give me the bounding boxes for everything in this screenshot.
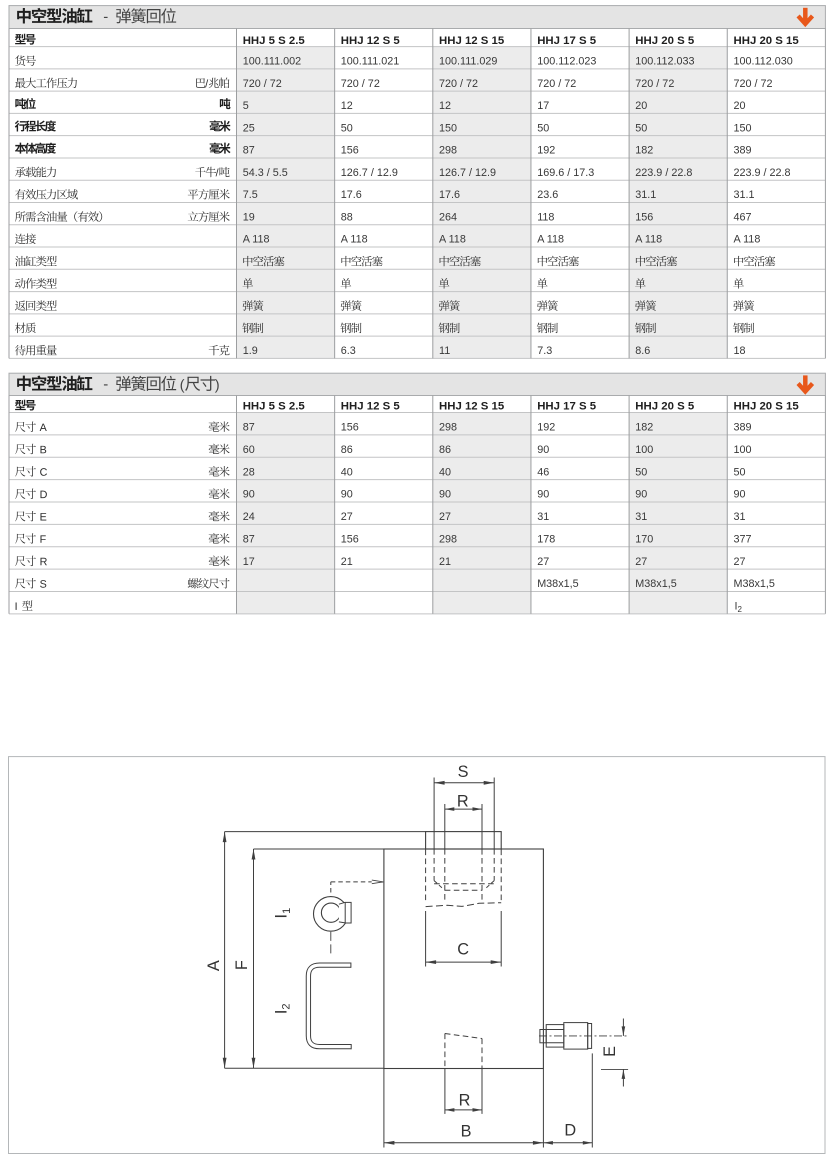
svg-text:720 / 72: 720 / 72 xyxy=(537,78,576,90)
svg-text:21: 21 xyxy=(439,556,451,568)
svg-text:50: 50 xyxy=(635,122,647,134)
svg-text:17: 17 xyxy=(537,100,549,112)
svg-text:182: 182 xyxy=(635,145,653,157)
svg-text:7.3: 7.3 xyxy=(537,345,552,357)
svg-text:720 / 72: 720 / 72 xyxy=(341,78,380,90)
svg-text:170: 170 xyxy=(635,533,653,545)
svg-text:A 118: A 118 xyxy=(341,234,368,246)
svg-text:17.6: 17.6 xyxy=(439,189,460,201)
svg-text:720 / 72: 720 / 72 xyxy=(439,78,478,90)
svg-text:HHJ 12 S 15: HHJ 12 S 15 xyxy=(439,401,505,413)
svg-text:156: 156 xyxy=(341,533,359,545)
svg-text:150: 150 xyxy=(439,122,457,134)
svg-text:31: 31 xyxy=(635,511,647,523)
svg-text:R: R xyxy=(457,792,469,810)
svg-text:I2: I2 xyxy=(735,601,743,615)
svg-text:18: 18 xyxy=(734,345,746,357)
svg-text:40: 40 xyxy=(439,466,451,478)
svg-text:20: 20 xyxy=(635,100,647,112)
svg-text:720 / 72: 720 / 72 xyxy=(243,78,282,90)
svg-text:156: 156 xyxy=(341,145,359,157)
svg-text:40: 40 xyxy=(341,466,353,478)
svg-text:223.9 / 22.8: 223.9 / 22.8 xyxy=(734,167,791,179)
svg-text:192: 192 xyxy=(537,422,555,434)
svg-text:182: 182 xyxy=(635,422,653,434)
svg-text:54.3 / 5.5: 54.3 / 5.5 xyxy=(243,167,288,179)
svg-text:31: 31 xyxy=(537,511,549,523)
svg-text:87: 87 xyxy=(243,422,255,434)
svg-text:50: 50 xyxy=(341,122,353,134)
svg-text:50: 50 xyxy=(537,122,549,134)
svg-text:23.6: 23.6 xyxy=(537,189,558,201)
svg-text:46: 46 xyxy=(537,466,549,478)
svg-text:720 / 72: 720 / 72 xyxy=(635,78,674,90)
svg-text:31.1: 31.1 xyxy=(635,189,656,201)
svg-text:90: 90 xyxy=(341,489,353,501)
svg-text:27: 27 xyxy=(635,556,647,568)
svg-text:100.112.033: 100.112.033 xyxy=(635,56,694,68)
svg-text:467: 467 xyxy=(734,212,752,224)
svg-text:12: 12 xyxy=(341,100,353,112)
svg-text:25: 25 xyxy=(243,122,255,134)
svg-text:6.3: 6.3 xyxy=(341,345,356,357)
svg-text:HHJ 20 S 5: HHJ 20 S 5 xyxy=(635,35,695,47)
svg-text:HHJ 12 S 5: HHJ 12 S 5 xyxy=(341,401,401,413)
svg-text:HHJ 20 S 15: HHJ 20 S 15 xyxy=(734,35,800,47)
svg-text:17.6: 17.6 xyxy=(341,189,362,201)
svg-text:90: 90 xyxy=(734,489,746,501)
svg-text:389: 389 xyxy=(734,145,752,157)
svg-text:A 118: A 118 xyxy=(734,234,761,246)
svg-text:A 118: A 118 xyxy=(243,234,270,246)
svg-text:D: D xyxy=(564,1121,576,1139)
svg-text:A: A xyxy=(205,960,223,971)
svg-text:HHJ 20 S 15: HHJ 20 S 15 xyxy=(734,401,800,413)
svg-text:M38x1,5: M38x1,5 xyxy=(537,578,578,590)
svg-text:11: 11 xyxy=(439,345,450,357)
svg-text:17: 17 xyxy=(243,556,255,568)
svg-text:377: 377 xyxy=(734,533,752,545)
svg-text:298: 298 xyxy=(439,533,457,545)
svg-text:R: R xyxy=(459,1092,471,1110)
svg-text:31: 31 xyxy=(734,511,746,523)
svg-text:298: 298 xyxy=(439,145,457,157)
svg-text:8.6: 8.6 xyxy=(635,345,650,357)
svg-text:F: F xyxy=(233,960,251,970)
svg-text:60: 60 xyxy=(243,444,255,456)
svg-text:20: 20 xyxy=(734,100,746,112)
svg-text:86: 86 xyxy=(439,444,451,456)
svg-text:156: 156 xyxy=(341,422,359,434)
svg-text:100.111.002: 100.111.002 xyxy=(243,56,301,68)
svg-text:90: 90 xyxy=(537,444,549,456)
svg-text:389: 389 xyxy=(734,422,752,434)
svg-text:86: 86 xyxy=(341,444,353,456)
svg-text:24: 24 xyxy=(243,511,255,523)
svg-text:31.1: 31.1 xyxy=(734,189,755,201)
svg-text:87: 87 xyxy=(243,145,255,157)
svg-text:M38x1,5: M38x1,5 xyxy=(635,578,676,590)
svg-text:100.111.029: 100.111.029 xyxy=(439,56,497,68)
svg-text:264: 264 xyxy=(439,212,457,224)
svg-text:298: 298 xyxy=(439,422,457,434)
svg-text:100: 100 xyxy=(734,444,752,456)
svg-text:-: - xyxy=(103,376,108,393)
svg-text:100.111.021: 100.111.021 xyxy=(341,56,399,68)
svg-text:1.9: 1.9 xyxy=(243,345,258,357)
svg-text:27: 27 xyxy=(734,556,746,568)
svg-text:50: 50 xyxy=(734,466,746,478)
svg-text:A 118: A 118 xyxy=(537,234,564,246)
svg-text:90: 90 xyxy=(537,489,549,501)
svg-text:5: 5 xyxy=(243,100,249,112)
svg-text:192: 192 xyxy=(537,145,555,157)
svg-text:87: 87 xyxy=(243,533,255,545)
svg-text:-: - xyxy=(103,9,108,26)
svg-text:90: 90 xyxy=(635,489,647,501)
svg-text:M38x1,5: M38x1,5 xyxy=(734,578,775,590)
svg-text:B: B xyxy=(461,1123,472,1141)
svg-text:C: C xyxy=(457,941,469,959)
svg-text:150: 150 xyxy=(734,122,752,134)
svg-text:178: 178 xyxy=(537,533,555,545)
svg-text:S: S xyxy=(458,763,469,781)
svg-text:HHJ 17 S 5: HHJ 17 S 5 xyxy=(537,35,597,47)
svg-text:A 118: A 118 xyxy=(439,234,466,246)
svg-text:27: 27 xyxy=(537,556,549,568)
svg-text:126.7 / 12.9: 126.7 / 12.9 xyxy=(439,167,496,179)
svg-text:50: 50 xyxy=(635,466,647,478)
svg-text:27: 27 xyxy=(341,511,353,523)
svg-text:223.9 / 22.8: 223.9 / 22.8 xyxy=(635,167,692,179)
svg-text:90: 90 xyxy=(439,489,451,501)
svg-text:HHJ 12 S 5: HHJ 12 S 5 xyxy=(341,35,401,47)
svg-text:21: 21 xyxy=(341,556,353,568)
svg-text:HHJ 20 S 5: HHJ 20 S 5 xyxy=(635,401,695,413)
svg-text:156: 156 xyxy=(635,212,653,224)
svg-text:126.7 / 12.9: 126.7 / 12.9 xyxy=(341,167,398,179)
svg-text:19: 19 xyxy=(243,212,255,224)
svg-text:HHJ 5 S 2.5: HHJ 5 S 2.5 xyxy=(243,35,306,47)
svg-text:169.6 / 17.3: 169.6 / 17.3 xyxy=(537,167,594,179)
svg-text:HHJ 12 S 15: HHJ 12 S 15 xyxy=(439,35,505,47)
svg-text:88: 88 xyxy=(341,212,353,224)
svg-text:HHJ 5 S 2.5: HHJ 5 S 2.5 xyxy=(243,401,306,413)
svg-text:100: 100 xyxy=(635,444,653,456)
svg-text:100.112.023: 100.112.023 xyxy=(537,56,596,68)
svg-text:118: 118 xyxy=(537,212,554,224)
svg-text:27: 27 xyxy=(439,511,451,523)
svg-text:28: 28 xyxy=(243,466,255,478)
svg-text:720 / 72: 720 / 72 xyxy=(734,78,773,90)
svg-text:7.5: 7.5 xyxy=(243,189,258,201)
svg-text:A 118: A 118 xyxy=(635,234,662,246)
svg-text:HHJ 17 S 5: HHJ 17 S 5 xyxy=(537,401,597,413)
svg-text:E: E xyxy=(601,1046,619,1057)
svg-text:12: 12 xyxy=(439,100,451,112)
svg-text:100.112.030: 100.112.030 xyxy=(734,56,793,68)
svg-text:90: 90 xyxy=(243,489,255,501)
